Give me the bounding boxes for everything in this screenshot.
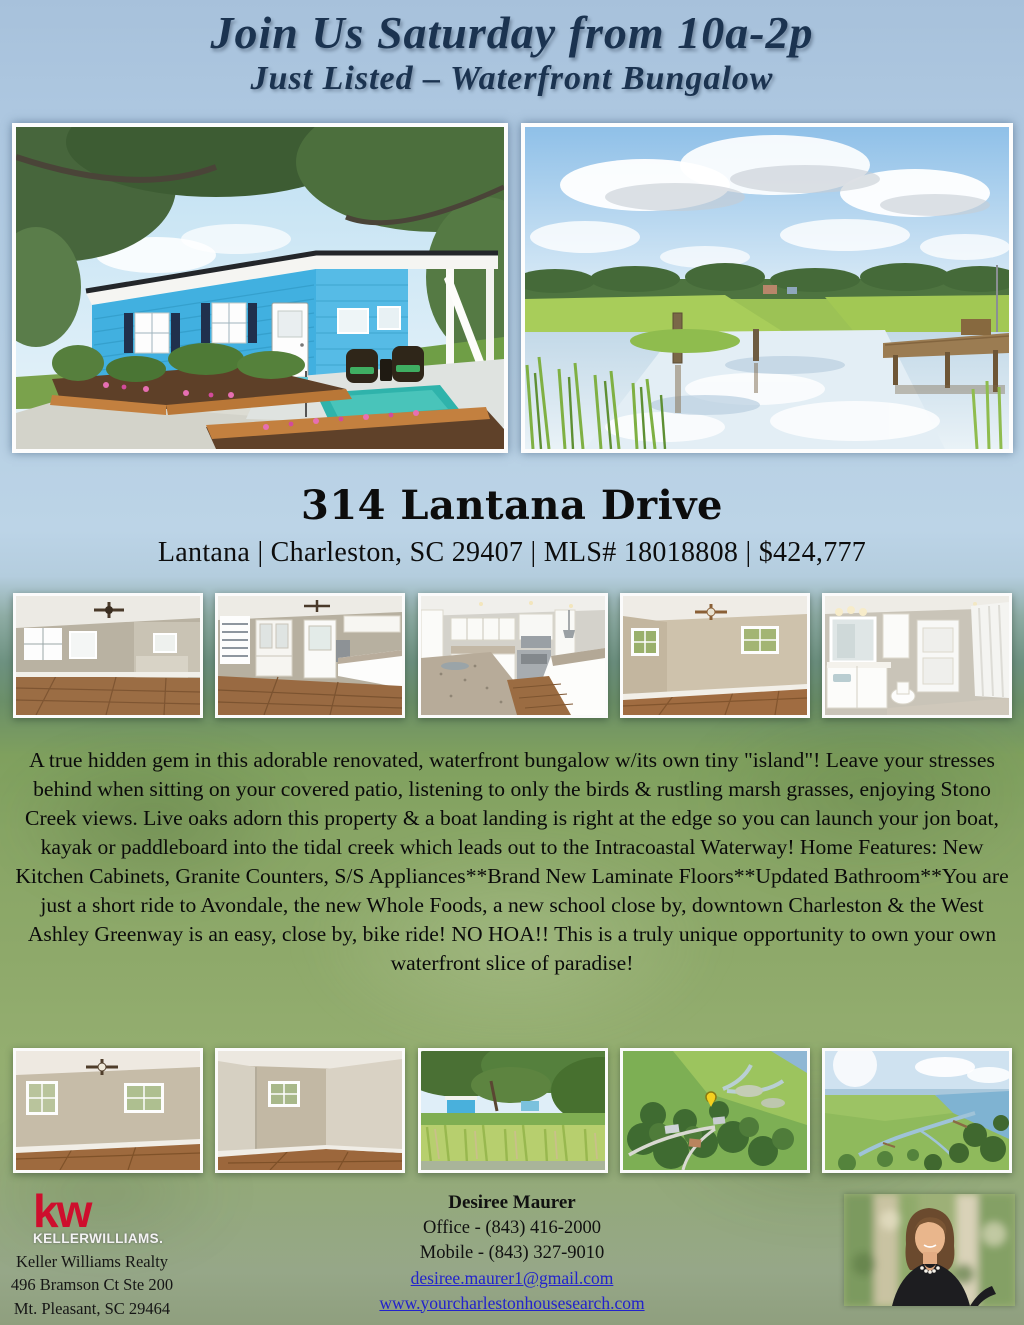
- agent-headshot-photo: [844, 1194, 1015, 1306]
- address-block: 314 Lantana Drive Lantana | Charleston, …: [0, 482, 1024, 569]
- thumb-marsh-to-house: [418, 1048, 608, 1173]
- thumb-aerial-waterway: [822, 1048, 1012, 1173]
- thumb-bedroom-main: [620, 593, 810, 718]
- property-meta: Lantana | Charleston, SC 29407 | MLS# 18…: [0, 537, 1024, 569]
- agent-website-link[interactable]: www.yourcharlestonhousesearch.com: [379, 1294, 644, 1313]
- property-address: 314 Lantana Drive: [0, 482, 1024, 529]
- agent-contact-block: Desiree Maurer Office - (843) 416-2000 M…: [312, 1192, 712, 1313]
- flyer-page: Join Us Saturday from 10a-2p Just Listed…: [0, 0, 1024, 1325]
- property-description: A true hidden gem in this adorable renov…: [10, 746, 1014, 978]
- brokerage-address: Keller Williams Realty 496 Bramson Ct St…: [6, 1250, 178, 1320]
- thumbnail-row-1: [13, 593, 1012, 718]
- header-just-listed-line: Just Listed – Waterfront Bungalow: [0, 59, 1024, 100]
- agent-name: Desiree Maurer: [312, 1192, 712, 1214]
- photo-marsh-view: [521, 123, 1013, 453]
- thumb-bedroom-one-window: [215, 1048, 405, 1173]
- header-open-house-line: Join Us Saturday from 10a-2p: [0, 8, 1024, 59]
- thumb-bedroom-two-windows: [13, 1048, 203, 1173]
- thumb-aerial-neighborhood: [620, 1048, 810, 1173]
- keller-williams-logo: kw KELLERWILLIAMS.: [33, 1192, 163, 1246]
- thumb-bathroom: [822, 593, 1012, 718]
- agent-email-link[interactable]: desiree.maurer1@gmail.com: [411, 1269, 614, 1288]
- brokerage-address-line: 496 Bramson Ct Ste 200: [6, 1273, 178, 1296]
- agent-office-phone: Office - (843) 416-2000: [312, 1218, 712, 1239]
- thumbnail-row-2: [13, 1048, 1012, 1173]
- agent-mobile-phone: Mobile - (843) 327-9010: [312, 1243, 712, 1264]
- photo-front-exterior: [12, 123, 508, 453]
- kw-logo-mark: kw: [33, 1192, 163, 1231]
- thumb-dining-area: [215, 593, 405, 718]
- brokerage-address-line: Keller Williams Realty: [6, 1250, 178, 1273]
- flyer-header: Join Us Saturday from 10a-2p Just Listed…: [0, 8, 1024, 99]
- brokerage-address-line: Mt. Pleasant, SC 29464: [6, 1297, 178, 1320]
- thumb-kitchen: [418, 593, 608, 718]
- kw-logo-wordmark: KELLERWILLIAMS.: [33, 1231, 163, 1246]
- thumb-living-room: [13, 593, 203, 718]
